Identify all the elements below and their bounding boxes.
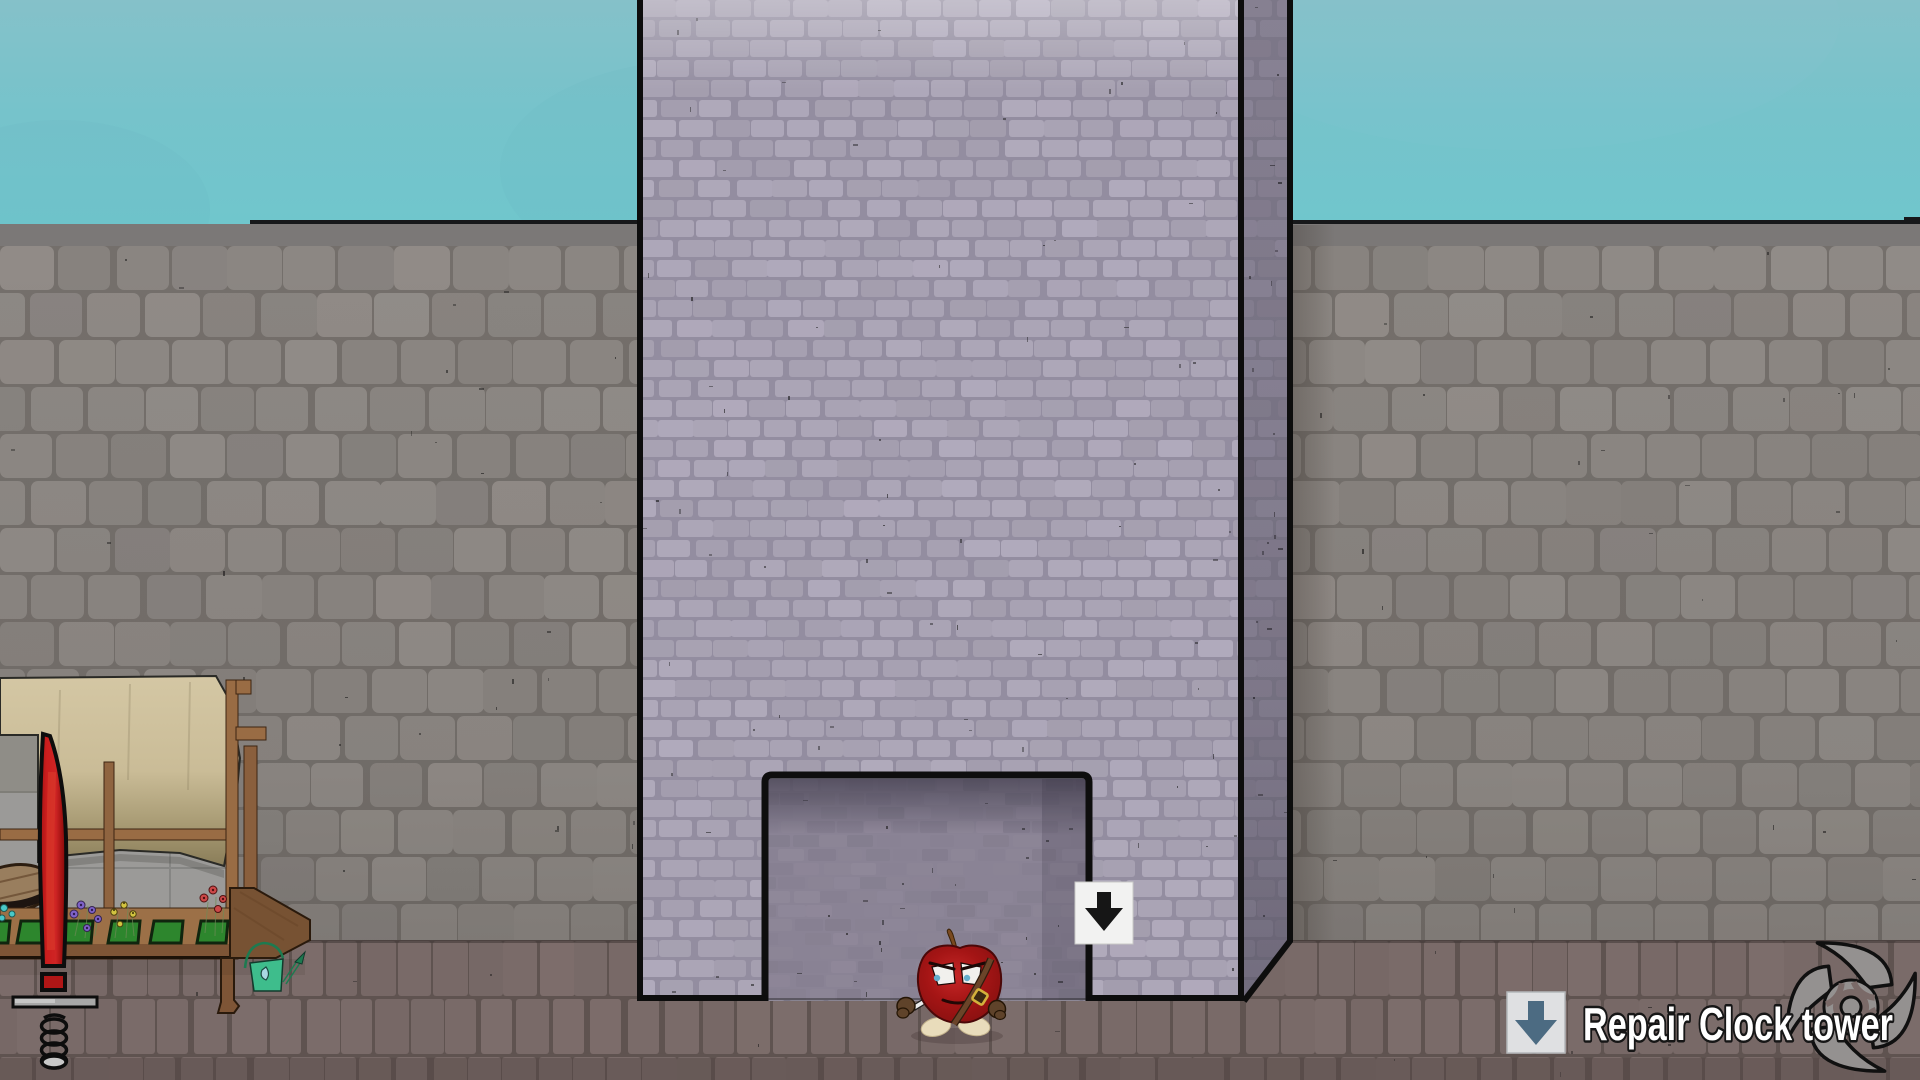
svg-text:Repair Clock tower: Repair Clock tower (1583, 998, 1893, 1050)
